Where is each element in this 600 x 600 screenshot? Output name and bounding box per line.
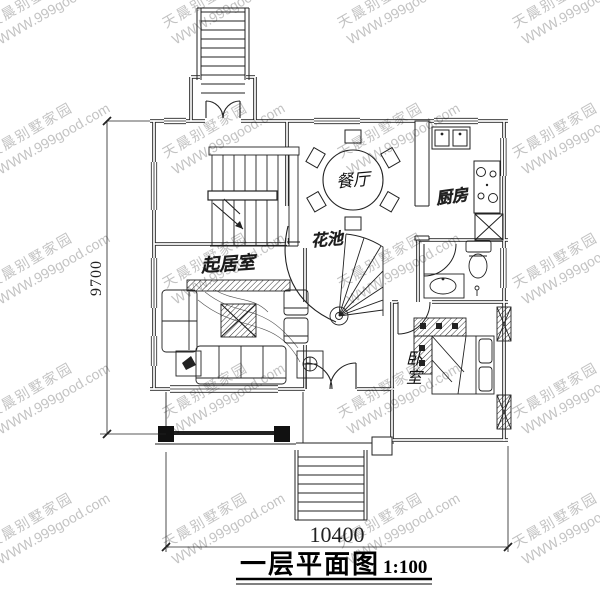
porch-column-right — [274, 426, 290, 442]
window-left-1 — [149, 162, 159, 210]
window-left-3 — [149, 336, 159, 366]
kitchen-stove — [474, 161, 500, 213]
window-bottom-living — [170, 384, 278, 394]
dimension-width-text: 10400 — [310, 522, 365, 547]
bedroom-window-box-1 — [497, 307, 511, 341]
main-entrance-double-door — [306, 363, 356, 389]
kitchen: 厨房 — [432, 127, 503, 240]
bathroom-door — [424, 244, 456, 276]
entry-double-door-top — [206, 101, 240, 118]
tv-cabinet — [187, 280, 290, 291]
kitchen-flue — [475, 214, 503, 240]
bottom-exterior-staircase — [295, 450, 367, 520]
kitchen-door-opening — [413, 206, 431, 236]
entry-step-pier — [372, 437, 392, 455]
window-top-2 — [314, 116, 360, 126]
window-left-2 — [149, 258, 159, 308]
dining-room: 餐厅 — [306, 130, 400, 230]
window-top-1 — [164, 116, 186, 126]
armchair-2 — [284, 318, 308, 343]
plan-title: 一层平面图 — [240, 550, 380, 579]
floor-plan-page: 餐厅 厨房 — [0, 0, 600, 600]
window-right-2 — [499, 248, 509, 288]
living-room-label: 起居室 — [200, 252, 258, 276]
bathroom — [424, 241, 491, 298]
dimension-height-text: 9700 — [88, 260, 105, 296]
dimension-bottom: 10400 — [162, 446, 512, 552]
hall-fan-staircase: 花池 — [285, 226, 383, 325]
plan-scale: 1:100 — [383, 557, 427, 578]
floor-drain — [475, 286, 479, 296]
floor-plan-drawing: 餐厅 厨房 — [0, 0, 600, 600]
bathroom-sink — [424, 274, 464, 298]
bedroom-label: 卧室 — [399, 350, 423, 388]
sofa-l-left — [162, 290, 197, 352]
living-room: 起居室 — [162, 252, 323, 384]
side-table-lamp — [297, 351, 323, 378]
toilet — [466, 241, 491, 278]
dining-room-label: 餐厅 — [335, 169, 374, 191]
sofa-three-seat — [196, 346, 286, 384]
side-table-speaker — [176, 351, 201, 376]
porch-terrace — [155, 392, 394, 455]
top-exterior-staircase — [197, 8, 249, 93]
flower-bed-label: 花池 — [310, 229, 345, 250]
stair-direction-arrow — [235, 221, 243, 229]
kitchen-label: 厨房 — [435, 186, 471, 209]
bed — [432, 336, 494, 394]
title-block: 一层平面图 1:100 — [236, 550, 432, 584]
kitchen-sink — [432, 127, 470, 149]
coffee-table — [221, 304, 256, 337]
bedroom-window-box-2 — [497, 395, 511, 429]
window-top-3 — [434, 116, 478, 126]
